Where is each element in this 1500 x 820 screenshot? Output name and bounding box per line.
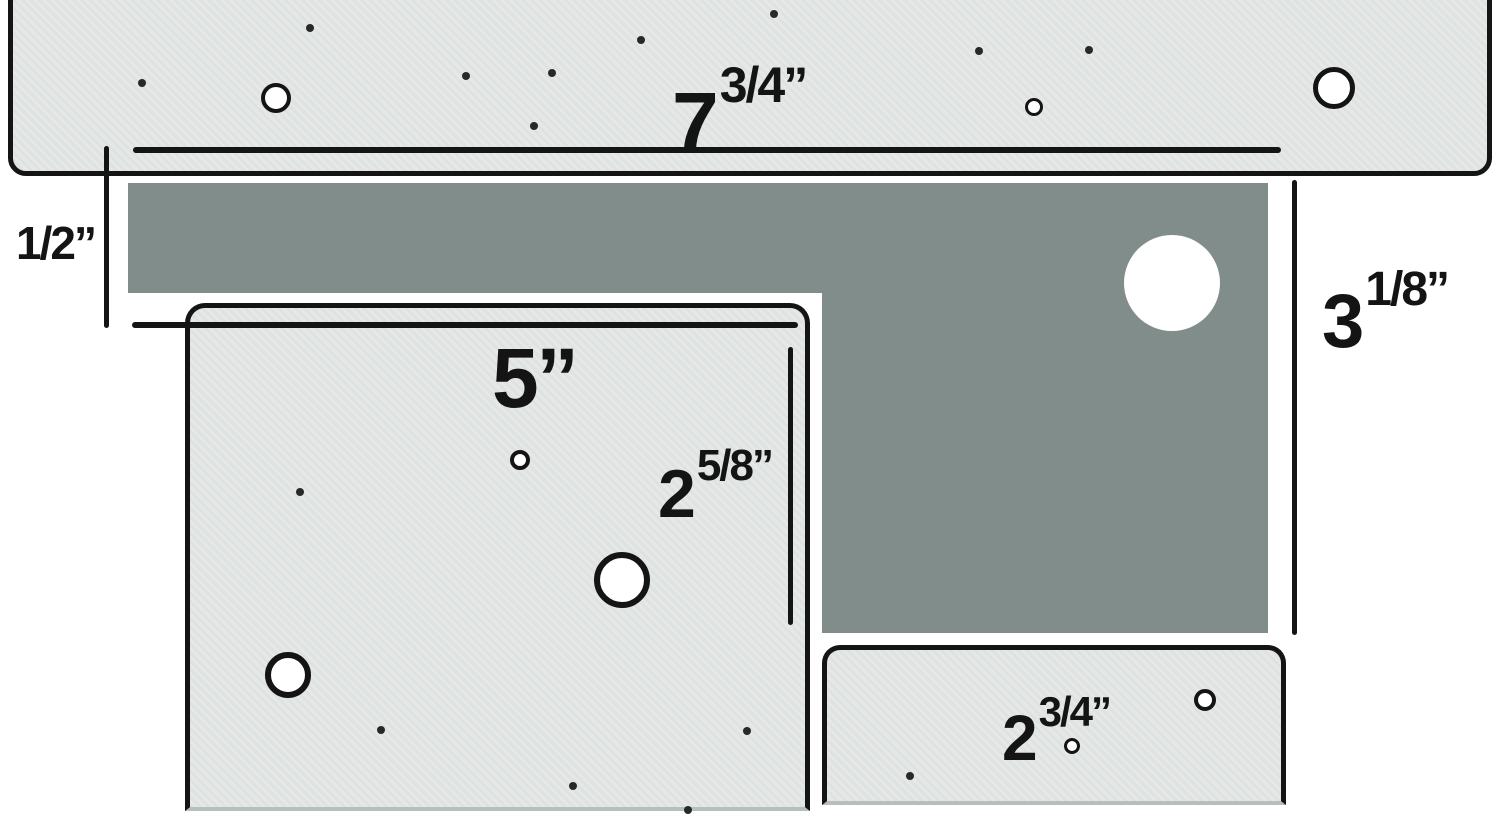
dim-label-right-column-height: 3 1/8”: [1322, 266, 1448, 360]
column-height-dimension-line: [1292, 180, 1297, 635]
dim-value: 7: [672, 80, 717, 164]
plate-width-reference-line: [132, 322, 798, 328]
dim-label-top-plate-width: 7 3/4”: [672, 60, 806, 164]
vertical-gap-dimension-line: [104, 146, 109, 328]
dim-value: 5’’: [492, 336, 576, 420]
dim-fraction: 3/4”: [720, 60, 807, 110]
dim-label-left-plate-width: 5’’: [492, 336, 576, 420]
back-plate-column: [822, 183, 1268, 633]
dim-label-left-plate-height: 2 5/8”: [658, 444, 772, 528]
dim-value: 2: [1002, 706, 1036, 770]
dim-value: 2: [658, 460, 694, 528]
plate-height-dimension-line: [788, 347, 793, 625]
bracket-dimension-diagram: { "colors": { "background": "#ffffff", "…: [0, 0, 1500, 820]
dim-fraction: 5/8”: [697, 444, 772, 488]
dim-value: 3: [1322, 284, 1362, 360]
dim-fraction: 1/8”: [1365, 266, 1448, 314]
dim-label-bottom-plate-width: 2 3/4”: [1002, 691, 1110, 770]
dim-value: 1/2”: [16, 220, 95, 266]
dim-fraction: 3/4”: [1039, 691, 1110, 733]
dim-label-vertical-gap: 1/2”: [16, 220, 95, 266]
